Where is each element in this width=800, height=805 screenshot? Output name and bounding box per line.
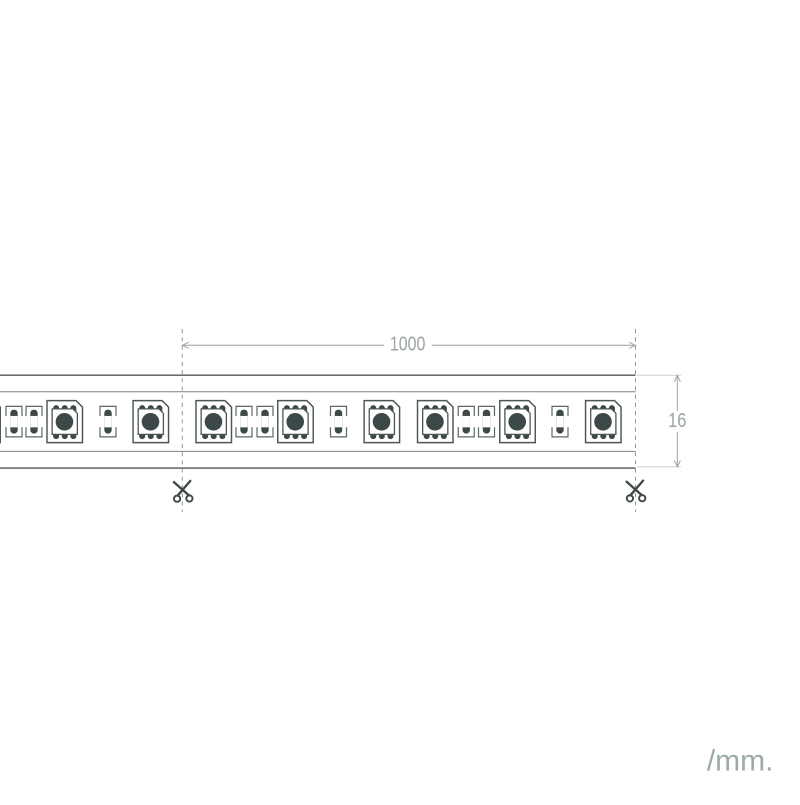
- svg-text:1000: 1000: [390, 334, 426, 356]
- svg-text:/mm.: /mm.: [707, 745, 774, 778]
- svg-text:16: 16: [668, 410, 686, 432]
